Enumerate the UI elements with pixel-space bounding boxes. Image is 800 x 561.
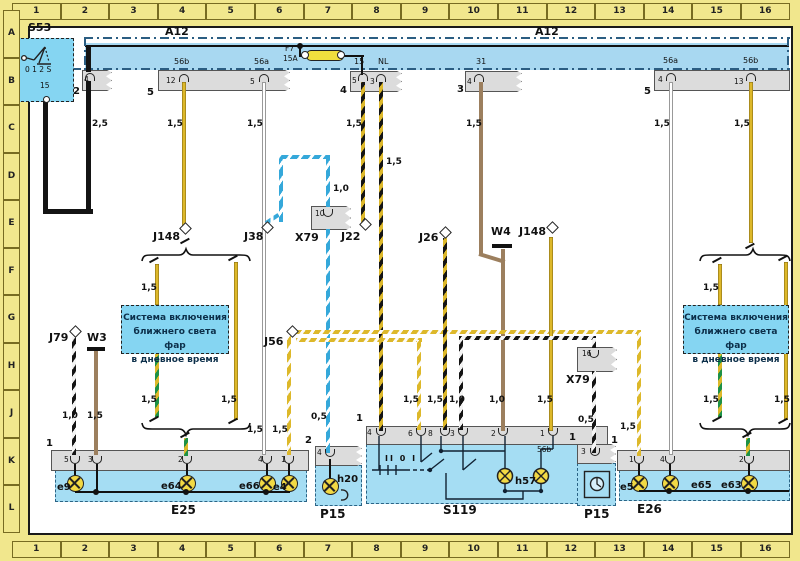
grid-col-bottom: 16 xyxy=(741,541,790,558)
grid-col-top: 3 xyxy=(109,3,158,20)
grid-row-left: K xyxy=(3,438,20,486)
grid-col-bottom: 3 xyxy=(109,541,158,558)
grid-col-top: 7 xyxy=(304,3,353,20)
grid-col-bottom: 1 xyxy=(12,541,61,558)
grid-row-left: C xyxy=(3,105,20,153)
grid-col-bottom: 6 xyxy=(255,541,304,558)
grid-col-bottom: 12 xyxy=(547,541,596,558)
grid-row-left: F xyxy=(3,248,20,296)
grid-col-bottom: 13 xyxy=(595,541,644,558)
grid-row-left: L xyxy=(3,485,20,533)
grid-col-bottom: 10 xyxy=(449,541,498,558)
grid-col-top: 15 xyxy=(692,3,741,20)
grid-col-top: 13 xyxy=(595,3,644,20)
grid-col-bottom: 11 xyxy=(498,541,547,558)
grid-row-left: E xyxy=(3,200,20,248)
grid-col-bottom: 8 xyxy=(352,541,401,558)
grid-col-bottom: 7 xyxy=(304,541,353,558)
grid-row-left: J xyxy=(3,390,20,438)
grid-col-top: 14 xyxy=(644,3,693,20)
grid-row-left: A xyxy=(3,10,20,58)
grid-col-bottom: 14 xyxy=(644,541,693,558)
grid-col-top: 5 xyxy=(206,3,255,20)
grid-row-left: B xyxy=(3,58,20,106)
grid-col-top: 6 xyxy=(255,3,304,20)
grid-col-bottom: 4 xyxy=(158,541,207,558)
grid-row-left: D xyxy=(3,153,20,201)
grid-col-bottom: 15 xyxy=(692,541,741,558)
grid-col-top: 12 xyxy=(547,3,596,20)
grid-row-left: H xyxy=(3,343,20,391)
wiring-diagram-page: Система включения ближнего света фар в д… xyxy=(0,0,800,561)
grid-col-top: 9 xyxy=(401,3,450,20)
grid-col-bottom: 2 xyxy=(61,541,110,558)
grid-col-top: 16 xyxy=(741,3,790,20)
ruler-grid: 1122334455667788991010111112121313141415… xyxy=(0,0,800,561)
grid-col-top: 11 xyxy=(498,3,547,20)
grid-col-top: 2 xyxy=(61,3,110,20)
grid-row-left: G xyxy=(3,295,20,343)
grid-col-top: 8 xyxy=(352,3,401,20)
grid-col-bottom: 9 xyxy=(401,541,450,558)
grid-col-top: 4 xyxy=(158,3,207,20)
grid-col-bottom: 5 xyxy=(206,541,255,558)
grid-col-top: 10 xyxy=(449,3,498,20)
